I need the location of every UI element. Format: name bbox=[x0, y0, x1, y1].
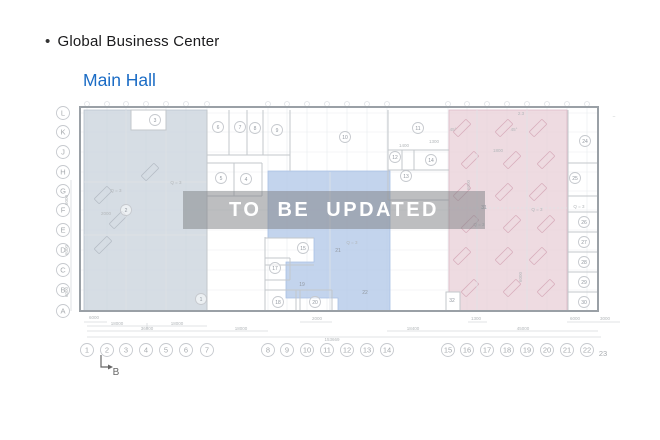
row-axis-label: F bbox=[61, 206, 66, 215]
col-axis-label: 19 bbox=[523, 346, 531, 355]
dim-label: 6000 bbox=[89, 315, 100, 320]
row-axis-label: K bbox=[60, 128, 65, 137]
dim-label: 1300 bbox=[429, 139, 440, 144]
dim-label: 6000 bbox=[518, 271, 523, 282]
room-number: 6 bbox=[217, 125, 220, 131]
top-tick-circle bbox=[305, 102, 310, 107]
dim-label: 2000 bbox=[312, 316, 323, 321]
room-number: 10 bbox=[342, 135, 348, 141]
room-number: 2 bbox=[125, 208, 128, 214]
room-number: 28 bbox=[581, 260, 587, 266]
top-tick-circle bbox=[325, 102, 330, 107]
top-tick-circle bbox=[124, 102, 129, 107]
col-axis-label: 7 bbox=[205, 346, 209, 355]
dim-label: 6000 bbox=[570, 316, 581, 321]
dim-label: 2.3 bbox=[518, 111, 525, 116]
dim-label: 3000 bbox=[600, 316, 611, 321]
row-axis: LKJHGFEDCBA bbox=[57, 107, 70, 318]
top-tick-circle bbox=[164, 102, 169, 107]
col-axis-label: 4 bbox=[144, 346, 148, 355]
dim-label: 18000 bbox=[111, 321, 124, 326]
dim-label: 1300 bbox=[471, 316, 482, 321]
col-axis-label: 12 bbox=[343, 346, 351, 355]
dim-label: 6000 bbox=[64, 286, 69, 297]
row-axis-label: J bbox=[61, 148, 65, 157]
col-axis-label: 23 bbox=[599, 349, 607, 358]
room-number: 8 bbox=[254, 126, 257, 132]
col-axis-label: 11 bbox=[323, 346, 331, 355]
col-axis-label: 22 bbox=[583, 346, 591, 355]
room-number: 14 bbox=[428, 158, 434, 164]
col-axis-label: 16 bbox=[463, 346, 471, 355]
col-axis-label: 10 bbox=[303, 346, 311, 355]
top-tick-circle bbox=[465, 102, 470, 107]
top-tick-circle bbox=[105, 102, 110, 107]
col-axis-label: 3 bbox=[124, 346, 128, 355]
room-number: 20 bbox=[312, 300, 318, 306]
room-number: 32 bbox=[449, 298, 455, 304]
dim-label: 6000 bbox=[64, 194, 69, 205]
section-marker: B bbox=[101, 355, 120, 378]
top-tick-circle bbox=[85, 102, 90, 107]
row-axis-label: L bbox=[61, 109, 65, 118]
row-axis-label: E bbox=[60, 226, 65, 235]
dim-label: 1800 bbox=[493, 148, 504, 153]
col-axis-label: 14 bbox=[383, 346, 391, 355]
dim-label: Q = 3 bbox=[170, 180, 182, 185]
col-axis-label: 17 bbox=[483, 346, 491, 355]
dim-label: 45° bbox=[511, 127, 518, 132]
dim-label: 153669 bbox=[324, 337, 340, 342]
top-tick-circle bbox=[144, 102, 149, 107]
room-number: 7 bbox=[239, 125, 242, 131]
room-number: 24 bbox=[582, 139, 588, 145]
dim-label: 18000 bbox=[171, 321, 184, 326]
col-axis-label: 21 bbox=[563, 346, 571, 355]
dim-label: 2000 bbox=[101, 211, 112, 216]
top-tick-circle bbox=[205, 102, 210, 107]
dim-label: Q = 3 bbox=[531, 207, 543, 212]
dim-label: 18000 bbox=[235, 326, 248, 331]
top-tick-circle bbox=[285, 102, 290, 107]
dim-label: 6000 bbox=[64, 244, 69, 255]
col-axis-label: 2 bbox=[105, 346, 109, 355]
col-axis-label: 8 bbox=[266, 346, 270, 355]
page: •Global Business Center Main Hall LKJHGF… bbox=[0, 0, 660, 440]
row-axis-label: H bbox=[60, 168, 65, 177]
col-axis-label: 1 bbox=[85, 346, 89, 355]
col-axis-label: 15 bbox=[444, 346, 452, 355]
dim-label: 36000 bbox=[141, 326, 154, 331]
dim-label: 1400 bbox=[399, 143, 410, 148]
row-axis-label: A bbox=[60, 307, 65, 316]
room-number: 3 bbox=[154, 118, 157, 124]
top-tick-circle bbox=[505, 102, 510, 107]
top-tick-circle bbox=[525, 102, 530, 107]
room-number: 25 bbox=[572, 176, 578, 182]
top-tick-circle bbox=[585, 102, 590, 107]
top-tick-circle bbox=[266, 102, 271, 107]
col-axis-label: 9 bbox=[285, 346, 289, 355]
watermark-text: TO BE UPDATED bbox=[229, 199, 439, 222]
col-axis-label: 6 bbox=[184, 346, 188, 355]
dim-label: 45° bbox=[450, 127, 457, 132]
col-axis-label: 18 bbox=[503, 346, 511, 355]
top-tick-circle bbox=[446, 102, 451, 107]
room-number: 18 bbox=[275, 300, 281, 306]
room-number: 27 bbox=[581, 240, 587, 246]
room-number: 1 bbox=[200, 297, 203, 303]
top-tick-circle bbox=[545, 102, 550, 107]
room-number: 22 bbox=[362, 290, 368, 296]
room-number: 15 bbox=[300, 246, 306, 252]
dim-label: 6000 bbox=[466, 179, 471, 190]
room-number: 5 bbox=[220, 176, 223, 182]
col-axis-label: 13 bbox=[363, 346, 371, 355]
top-tick-circle bbox=[385, 102, 390, 107]
row-axis-label: G bbox=[60, 187, 66, 196]
room-number: 21 bbox=[335, 248, 341, 254]
top-tick-circle bbox=[184, 102, 189, 107]
top-tick-circle bbox=[365, 102, 370, 107]
top-tick-circle bbox=[485, 102, 490, 107]
top-tick-circle bbox=[345, 102, 350, 107]
dim-label: 18400 bbox=[407, 326, 420, 331]
dim-label: Q = 3 bbox=[110, 188, 122, 193]
room-number: 4 bbox=[245, 177, 248, 183]
col-axis-label: 20 bbox=[543, 346, 551, 355]
room-number: 30 bbox=[581, 300, 587, 306]
room-number: 19 bbox=[299, 282, 305, 288]
dim-label: Q = 3 bbox=[346, 240, 358, 245]
top-tick-circle bbox=[565, 102, 570, 107]
row-axis-label: C bbox=[60, 266, 66, 275]
room-number: 29 bbox=[581, 280, 587, 286]
dim-label: 45000 bbox=[517, 326, 530, 331]
room-number: 11 bbox=[415, 126, 420, 132]
room-number: 26 bbox=[581, 220, 587, 226]
col-axis: 1234567891011121314151617181920212223 bbox=[81, 344, 608, 359]
dim-label: Q = 3 bbox=[573, 204, 585, 209]
room-number: 17 bbox=[272, 266, 278, 272]
watermark-band: TO BE UPDATED bbox=[183, 191, 485, 229]
room-number: 12 bbox=[392, 155, 398, 161]
room-number: 9 bbox=[276, 128, 279, 134]
col-axis-label: 5 bbox=[164, 346, 168, 355]
section-marker-label: B bbox=[113, 367, 120, 378]
room-number: 13 bbox=[403, 174, 409, 180]
dim-label: – bbox=[613, 114, 616, 119]
